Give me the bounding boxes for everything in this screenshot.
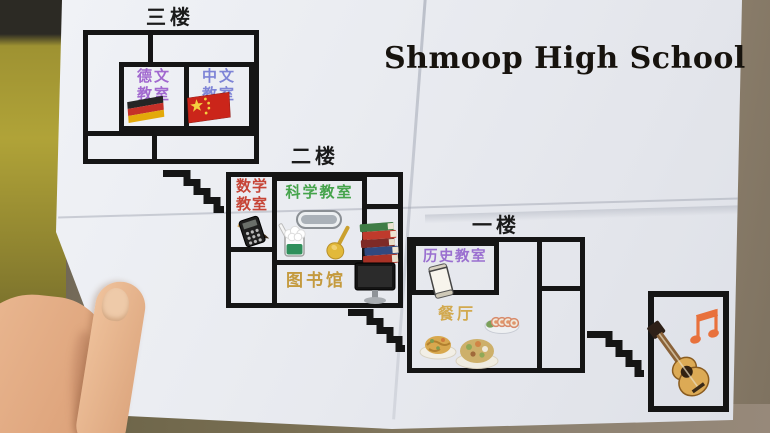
page-title: Shmoop High School — [384, 41, 746, 76]
spoon-icon — [325, 223, 355, 266]
second-floor-label: 二楼 — [291, 140, 339, 169]
history-classroom: 历史教室 — [411, 241, 499, 295]
computer-monitor-icon — [353, 261, 397, 312]
staircase-second-to-first — [345, 306, 405, 367]
third-floor-label: 三楼 — [146, 1, 194, 30]
third-floor-plan: 德文教室 中文教室 — [83, 30, 259, 164]
library-label: 图书馆 — [286, 271, 346, 291]
calculator-icon — [234, 213, 270, 254]
first-floor-label: 一楼 — [472, 209, 520, 238]
german-flag-icon — [125, 96, 167, 131]
sushi-plate-icon — [484, 312, 520, 341]
science-classroom: 科学教室 — [272, 176, 367, 265]
scroll-icon — [426, 262, 456, 305]
wall — [362, 204, 398, 209]
math-classroom-label: 数学教室 — [232, 178, 272, 213]
science-classroom-label: 科学教室 — [277, 184, 362, 202]
wall — [537, 242, 542, 368]
wall — [537, 286, 580, 291]
music-room — [648, 291, 729, 412]
wall — [152, 131, 157, 159]
cafeteria-label: 餐厅 — [438, 306, 476, 325]
third-floor-classrooms-box: 德文教室 中文教室 — [119, 62, 254, 131]
first-floor-plan: 历史教室 餐厅 — [407, 237, 585, 373]
noodle-plate-icon — [418, 328, 458, 365]
wall — [88, 131, 254, 136]
china-flag-icon — [186, 92, 234, 129]
staircase-third-to-second — [160, 167, 224, 228]
school-map-photo: Shmoop High School 三楼 德文教室 中文教室 — [0, 0, 770, 433]
second-floor-plan: 数学教室 科学教室 — [226, 172, 403, 308]
chinese-classroom: 中文教室 — [189, 67, 249, 126]
german-classroom: 德文教室 — [124, 67, 184, 126]
beaker-icon — [278, 217, 310, 264]
wall — [148, 35, 153, 63]
